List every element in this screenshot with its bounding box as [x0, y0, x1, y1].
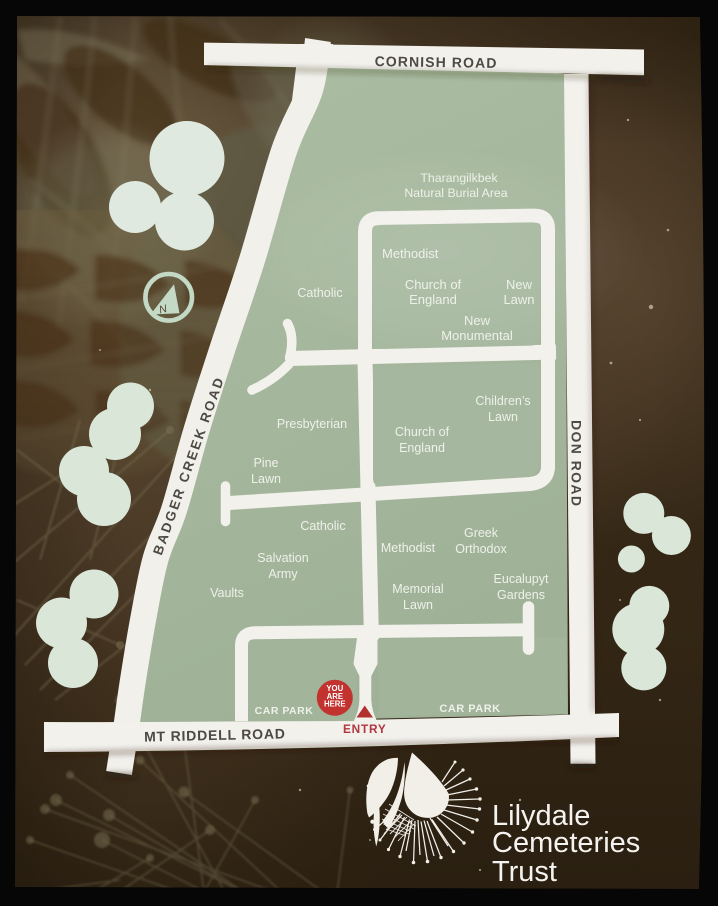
svg-text:Monumental: Monumental — [441, 328, 513, 343]
svg-text:MT RIDDELL ROAD: MT RIDDELL ROAD — [144, 725, 286, 744]
svg-text:Eucalupyt: Eucalupyt — [494, 572, 549, 586]
svg-text:ENTRY: ENTRY — [343, 722, 387, 736]
svg-text:Children’s: Children’s — [475, 394, 530, 408]
svg-text:Lawn: Lawn — [251, 472, 281, 486]
svg-text:Pine: Pine — [253, 456, 278, 470]
svg-text:New: New — [464, 313, 491, 328]
svg-text:Lawn: Lawn — [503, 292, 534, 307]
svg-text:Lawn: Lawn — [488, 410, 518, 424]
svg-text:CAR PARK: CAR PARK — [439, 703, 500, 715]
svg-text:Methodist: Methodist — [381, 541, 436, 555]
svg-text:Gardens: Gardens — [497, 588, 545, 602]
svg-text:New: New — [506, 277, 533, 292]
svg-text:England: England — [409, 292, 457, 307]
svg-text:CORNISH ROAD: CORNISH ROAD — [375, 53, 498, 71]
svg-text:Orthodox: Orthodox — [455, 542, 507, 556]
svg-text:DON ROAD: DON ROAD — [569, 420, 585, 507]
svg-text:Catholic: Catholic — [297, 286, 342, 300]
svg-text:Cemeteries: Cemeteries — [492, 827, 640, 859]
svg-text:Greek: Greek — [464, 526, 499, 540]
svg-text:Presbyterian: Presbyterian — [277, 417, 347, 431]
svg-text:HERE: HERE — [324, 699, 346, 708]
svg-text:Catholic: Catholic — [300, 519, 345, 533]
svg-text:England: England — [399, 441, 445, 455]
svg-text:CAR PARK: CAR PARK — [255, 705, 314, 717]
svg-text:Vaults: Vaults — [210, 586, 244, 600]
svg-text:Memorial: Memorial — [392, 582, 443, 596]
svg-text:Church of: Church of — [395, 425, 450, 439]
svg-text:Army: Army — [268, 567, 298, 581]
svg-text:Methodist: Methodist — [382, 246, 439, 261]
svg-text:Natural Burial Area: Natural Burial Area — [404, 186, 507, 200]
svg-text:Tharangilkbek: Tharangilkbek — [420, 171, 498, 185]
svg-text:Lawn: Lawn — [403, 598, 433, 612]
svg-text:Salvation: Salvation — [257, 551, 308, 565]
svg-text:Trust: Trust — [492, 856, 557, 888]
svg-text:Church of: Church of — [405, 277, 462, 292]
